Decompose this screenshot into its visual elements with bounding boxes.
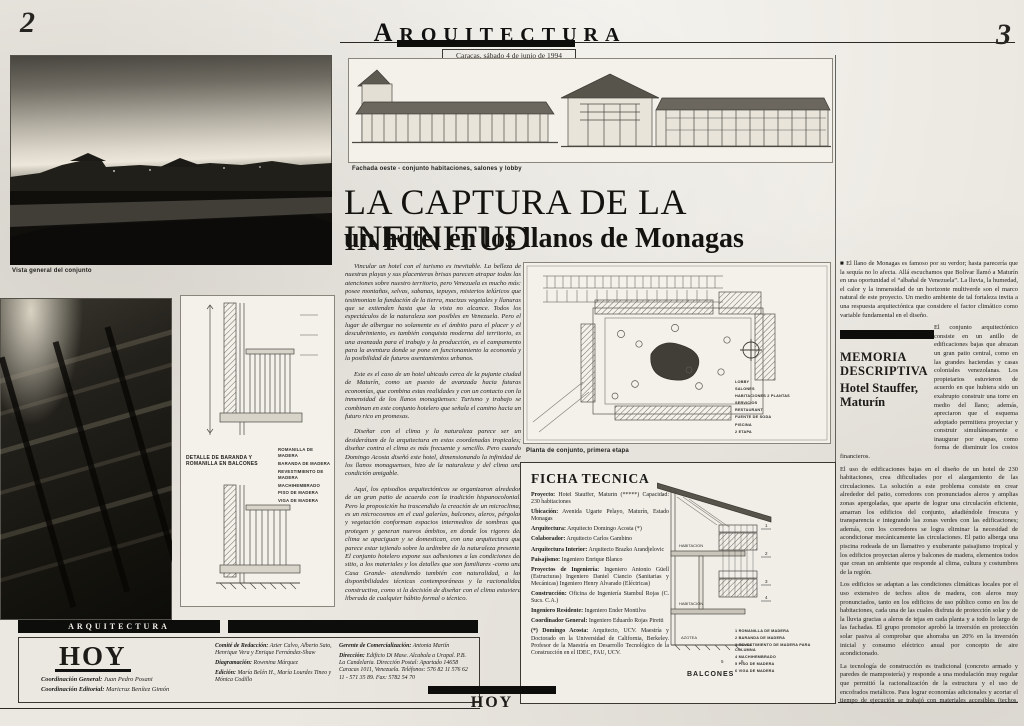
- detail-caption: DETALLE DE BARANDA Y ROMANILLA EN BALCON…: [186, 455, 258, 467]
- memoria-paragraph: El uso de edificaciones bajas en el dise…: [840, 466, 1018, 578]
- memoria-heading-block: MEMORIA DESCRIPTIVA Hotel Stauffer, Matu…: [840, 330, 928, 444]
- credit-line: Comité de Redacción: Azier Calvo, Albert…: [215, 643, 343, 658]
- credit-line: Dirección: Edificio Di Mase. Alcabala a …: [339, 653, 471, 682]
- ficha-entry: Ingeniero Residente: Ingeniero Ender Mon…: [531, 608, 669, 615]
- memoria-kicker-line4: Maturín: [840, 395, 928, 409]
- ficha-entry: Construcción: Oficina de Ingeniería Stam…: [531, 591, 669, 605]
- footer-section-bar: ARQUITECTURA: [18, 620, 220, 633]
- callout-2: 2: [765, 551, 768, 556]
- intro-paragraph: Aquí, los episodios arquitectónicos se o…: [345, 486, 521, 604]
- section-label-habitacion-1: HABITACION: [679, 543, 703, 548]
- elevation-drawing: [348, 58, 833, 163]
- detail-legend: ROMANILLA DE MADERABARANDA DE MADERAREVE…: [278, 447, 332, 506]
- memoria-heading-bar: [840, 330, 934, 339]
- footer-rule-left: [0, 708, 480, 709]
- coordination-credits: Coordinación General: Juan Pedro PosaniC…: [41, 676, 211, 696]
- ficha-entry: Paisajismo: Ingeniero Enrique Blanco: [531, 557, 669, 564]
- site-plan-legend-item: FUENTE DE SODA: [735, 415, 827, 421]
- memoria-kicker-line1: MEMORIA: [840, 351, 928, 365]
- newspaper-spread: 2 3 ARQUITECTURA Caracas, sábado 4 de ju…: [0, 0, 1024, 726]
- callout-4: 4: [765, 595, 768, 600]
- intro-paragraph: Este es el caso de un hotel ubicado cerc…: [345, 371, 521, 421]
- section-label-azotea: AZOTEA: [681, 635, 697, 640]
- article-subtitle: un hotel en los llanos de Monagas: [344, 224, 830, 254]
- site-plan-legend-item: SERVICIOS: [735, 401, 827, 407]
- page-number-right: 3: [996, 18, 1011, 52]
- ficha-entry: Proyectos de Ingeniería: Ingeniero Anton…: [531, 567, 669, 588]
- commercial-credits: Gerente de Comercialización: Antonia Mar…: [339, 643, 471, 684]
- detail-legend-item: BARANDA DE MADERA: [278, 461, 332, 467]
- elevation-caption: Fachada oeste - conjunto habitaciones, s…: [352, 166, 522, 173]
- detail-legend-item: ROMANILLA DE MADERA: [278, 447, 332, 459]
- ficha-entry: Coordinador General: Ingeniero Eduardo R…: [531, 618, 669, 625]
- ficha-entries: Proyecto: Hotel Stauffer, Maturín (*****…: [531, 492, 669, 696]
- callout-3: 3: [765, 579, 768, 584]
- credit-line: Coordinación General: Juan Pedro Posani: [41, 676, 211, 683]
- balcony-legend-item: 1 ROMANILLA DE MADERA: [735, 629, 829, 634]
- footer-bar-extension: [228, 620, 478, 633]
- ficha-entry: (*) Domingo Acosta: Arquitecto, UCV. Mae…: [531, 628, 669, 656]
- footer-credits-box: HOY Coordinación General: Juan Pedro Pos…: [18, 637, 480, 703]
- balcony-legend-item: 6 VIGA DE MADERA: [735, 669, 829, 674]
- intro-column: Vincular un hotel con el turismo es inev…: [345, 263, 521, 610]
- ficha-title: FICHA TECNICA: [531, 471, 669, 486]
- credit-line: Gerente de Comercialización: Antonia Mar…: [339, 643, 471, 650]
- intro-paragraph: Diseñar con el clima y la naturaleza par…: [345, 428, 521, 478]
- site-plan-legend-item: LOBBY: [735, 380, 827, 386]
- ficha-entry: Arquitectura: Arquitecto Domingo Acosta …: [531, 526, 669, 533]
- site-plan-legend: LOBBYSALONESHABITACIONES 2 PLANTASSERVIC…: [735, 380, 827, 437]
- detail-drawing: DETALLE DE BARANDA Y ROMANILLA EN BALCON…: [180, 295, 335, 607]
- detail-legend-item: MACHIHEMBRADO: [278, 483, 332, 489]
- balcony-section-caption: BALCONES: [687, 671, 734, 678]
- footer-rule-right: [838, 702, 1018, 703]
- ficha-entry: Colaborador: Arquitecto Carlos Gambino: [531, 536, 669, 543]
- staff-credits: Comité de Redacción: Azier Calvo, Albert…: [215, 643, 343, 687]
- site-plan-legend-item: SALONES: [735, 387, 827, 393]
- site-plan-caption: Planta de conjunto, primera etapa: [526, 448, 629, 455]
- main-photo-silhouette: [10, 55, 332, 265]
- ficha-entry: Ubicación: Avenida Ugarte Pelayo, Maturí…: [531, 509, 669, 523]
- memoria-paragraph: La tecnología de construcción es tradici…: [840, 663, 1018, 704]
- memoria-paragraph: ■ El llano de Monagas es famoso por su v…: [840, 260, 1018, 320]
- ficha-tecnica: FICHA TECNICA Proyecto: Hotel Stauffer, …: [531, 471, 669, 697]
- memoria-kicker-line2: DESCRIPTIVA: [840, 365, 928, 379]
- balcony-legend-item: 5 PISO DE MADERA: [735, 662, 829, 667]
- technical-box: FICHA TECNICA Proyecto: Hotel Stauffer, …: [520, 462, 836, 704]
- detail-legend-item: REVESTIMIENTO DE MADERA: [278, 469, 332, 481]
- credit-line: Diagramación: Rowmina Márquez: [215, 660, 343, 667]
- callout-5: 5: [721, 659, 724, 664]
- masthead-bar: [397, 40, 575, 47]
- hoy-logo: HOY: [55, 643, 131, 672]
- page-number-left: 2: [20, 6, 35, 40]
- memoria-kicker-line3: Hotel Stauffer,: [840, 381, 928, 395]
- balcony-photo: [0, 298, 172, 620]
- ficha-entry: Arquitectura Interior: Arquitecto Brazko…: [531, 547, 669, 554]
- ficha-entry: Proyecto: Hotel Stauffer, Maturín (*****…: [531, 492, 669, 506]
- intro-paragraph: Vincular un hotel con el turismo es inev…: [345, 263, 521, 364]
- credit-line: Edición: María Belén H., María Lourdes T…: [215, 670, 343, 685]
- credit-line: Coordinación Editorial: Maricruz Benítez…: [41, 686, 211, 693]
- main-photo: [10, 55, 332, 265]
- balcony-section-legend: 1 ROMANILLA DE MADERA2 BARANDA DE MADERA…: [735, 629, 829, 676]
- bottom-hoy-logo: HOY: [428, 695, 556, 711]
- site-plan-drawing: LOBBYSALONESHABITACIONES 2 PLANTASSERVIC…: [523, 262, 831, 444]
- memoria-paragraph: Los edificios se adaptan a las condicion…: [840, 581, 1018, 658]
- balcony-legend-item: 3 REVESTIMIENTO DE MADERA PARA COLUMNA: [735, 643, 829, 654]
- callout-1: 1: [765, 523, 768, 528]
- section-label-habitacion-2: HABITACION: [679, 601, 703, 606]
- balcony-legend-item: 2 BARANDA DE MADERA: [735, 636, 829, 641]
- detail-legend-item: PISO DE MADERA: [278, 490, 332, 496]
- main-photo-caption: Vista general del conjunto: [12, 268, 92, 275]
- site-plan-legend-item: 2 ETAPA: [735, 430, 827, 436]
- detail-legend-item: VIGA DE MADERA: [278, 498, 332, 504]
- balcony-legend-item: 4 MACHIHEMBRADO: [735, 655, 829, 660]
- site-plan-legend-item: PISCINA: [735, 423, 827, 429]
- site-plan-legend-item: RESTAURANT: [735, 408, 827, 414]
- bottom-brand-bar: [428, 686, 556, 694]
- site-plan-legend-item: HABITACIONES 2 PLANTAS: [735, 394, 827, 400]
- memoria-column: ■ El llano de Monagas es famoso por su v…: [840, 260, 1018, 704]
